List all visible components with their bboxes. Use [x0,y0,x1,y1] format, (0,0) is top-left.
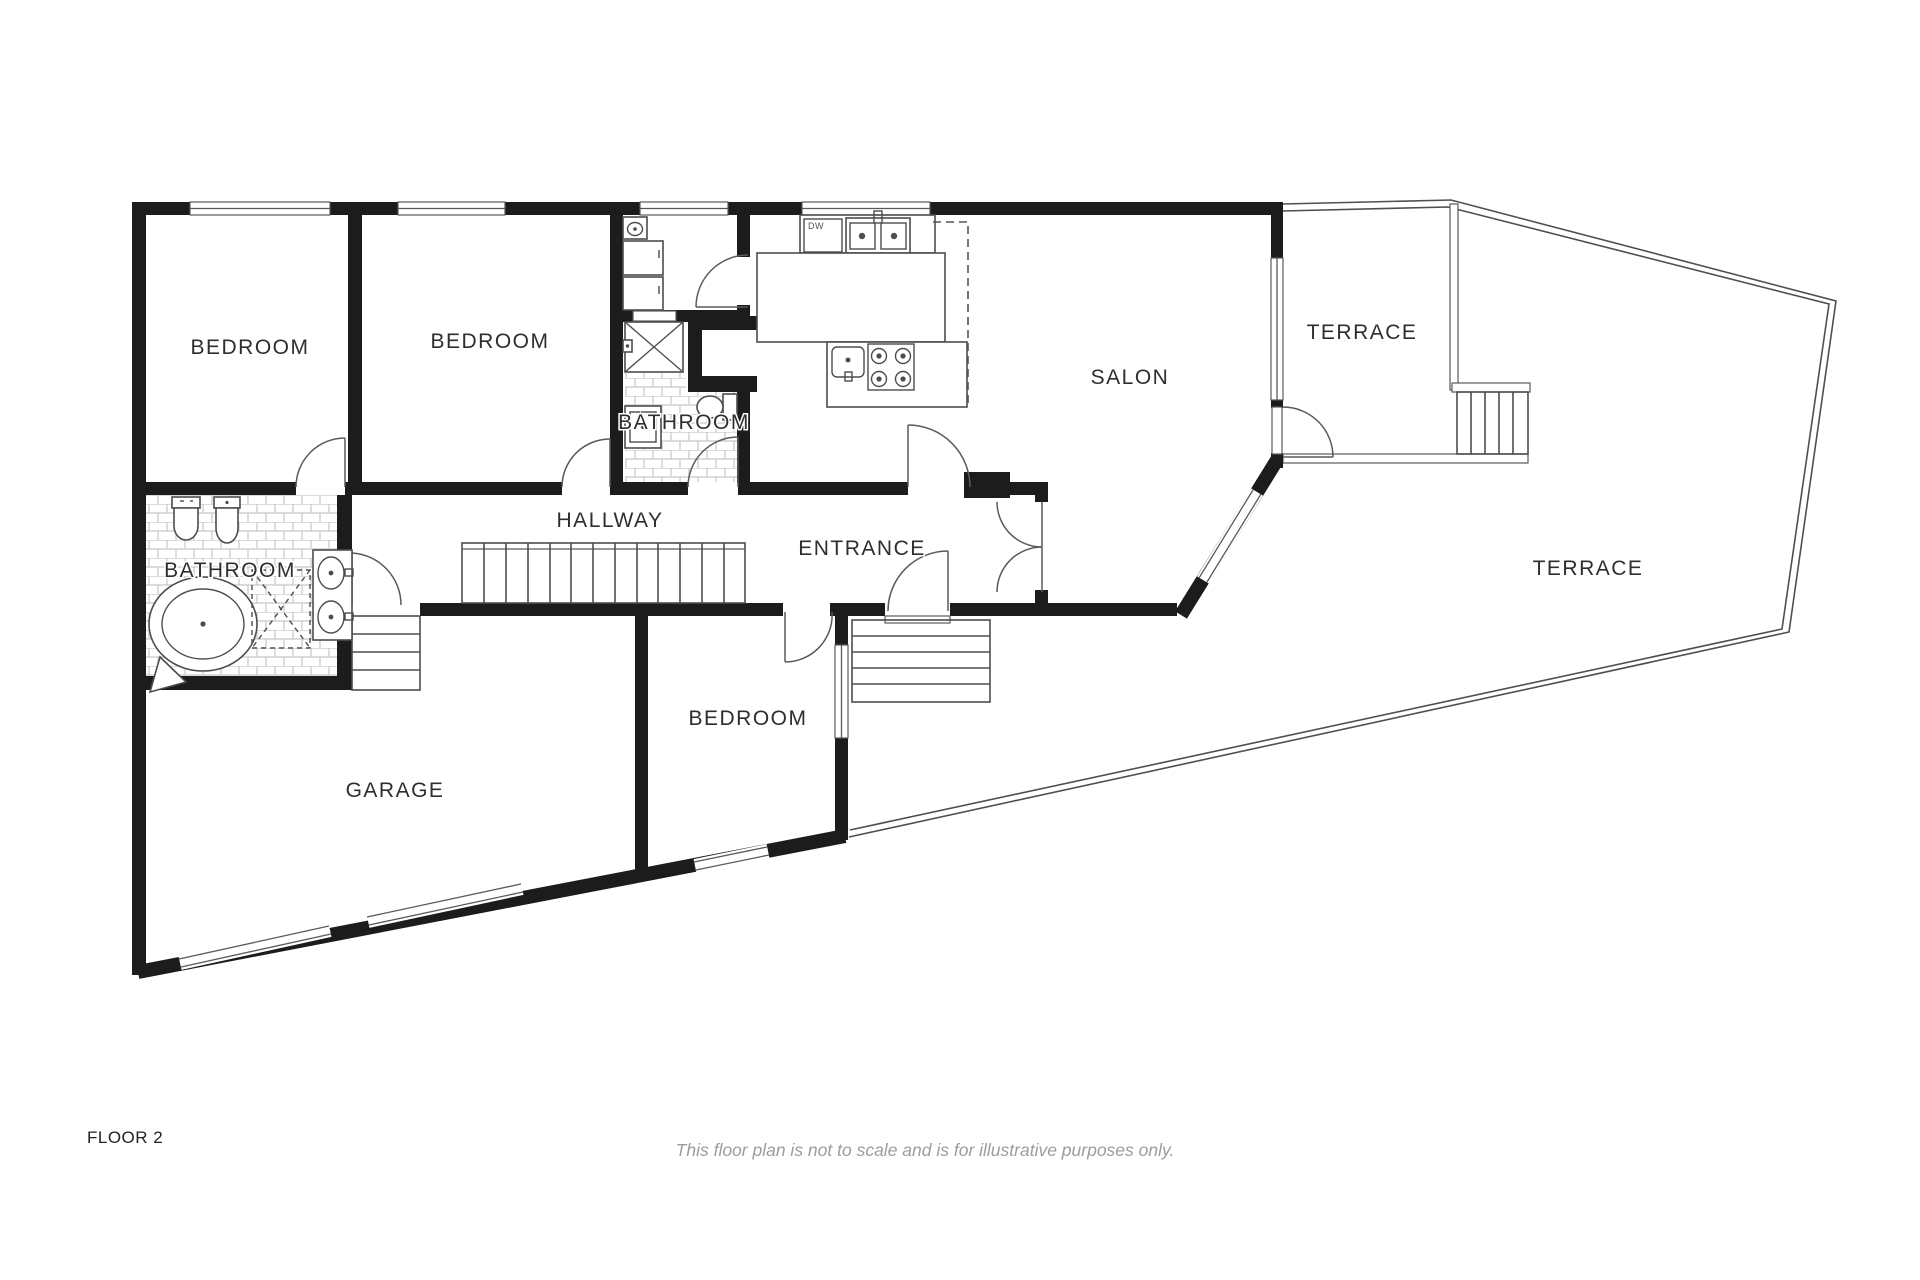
room-label-hallway: HALLWAY [557,509,664,532]
room-label-garage: GARAGE [346,779,445,802]
door-bathroom-left [352,553,401,605]
kitchen-sink-icon [846,211,910,253]
lot-boundary [849,200,1836,837]
floor-label: FLOOR 2 [87,1128,163,1147]
door-double-salon [997,502,1042,592]
door-bedroom3 [785,612,832,662]
door-kitchen [908,425,970,487]
entrance-steps [852,620,990,702]
kitchen-peninsula [757,253,945,342]
door-bedroom1 [296,438,345,487]
bidet-icon [214,497,240,543]
room-label-terrace-upper: TERRACE [1307,321,1418,344]
door-terrace [1283,407,1333,457]
door-front [888,551,948,611]
window-top-bedroom1 [190,202,330,215]
room-label-bedroom3: BEDROOM [688,707,807,730]
dishwasher-label: DW [808,221,824,231]
window-bedroom3-front [694,847,769,870]
shower-icon [623,322,683,372]
cabinet-icon [623,241,663,310]
window-top-bedroom2 [398,202,505,215]
disclaimer-text: This floor plan is not to scale and is f… [676,1140,1175,1160]
door-bedroom2 [562,439,610,487]
vanity-sinks-icon [313,550,353,640]
window-salon-diagonal [1199,490,1261,582]
window-strip-sill [633,311,676,321]
toilet-icon [172,497,200,540]
window-top-strip [640,202,728,215]
terrace-stairs [1457,392,1528,454]
room-label-bathroom-center: BATHROOM [618,411,750,434]
room-label-bedroom1: BEDROOM [190,336,309,359]
room-label-salon: SALON [1091,366,1170,389]
floor-plan: DW [0,0,1920,1280]
room-label-terrace-main: TERRACE [1533,557,1644,580]
window-garage-1 [179,926,331,967]
garage-steps [352,616,420,690]
door-strip-room [696,255,748,307]
window-salon-terrace [1271,258,1283,400]
window-top-kitchen [802,202,930,215]
window-bedroom3-right [835,645,848,738]
floorplan-page: DW [0,0,1920,1280]
kitchen: DW [757,211,968,407]
small-sink-icon [623,217,647,239]
hallway-stairs [462,543,745,603]
room-label-entrance: ENTRANCE [798,537,926,560]
room-label-bathroom-left: BATHROOM [164,559,296,582]
room-label-bedroom2: BEDROOM [430,330,549,353]
terrace-door-jamb [1272,407,1282,454]
